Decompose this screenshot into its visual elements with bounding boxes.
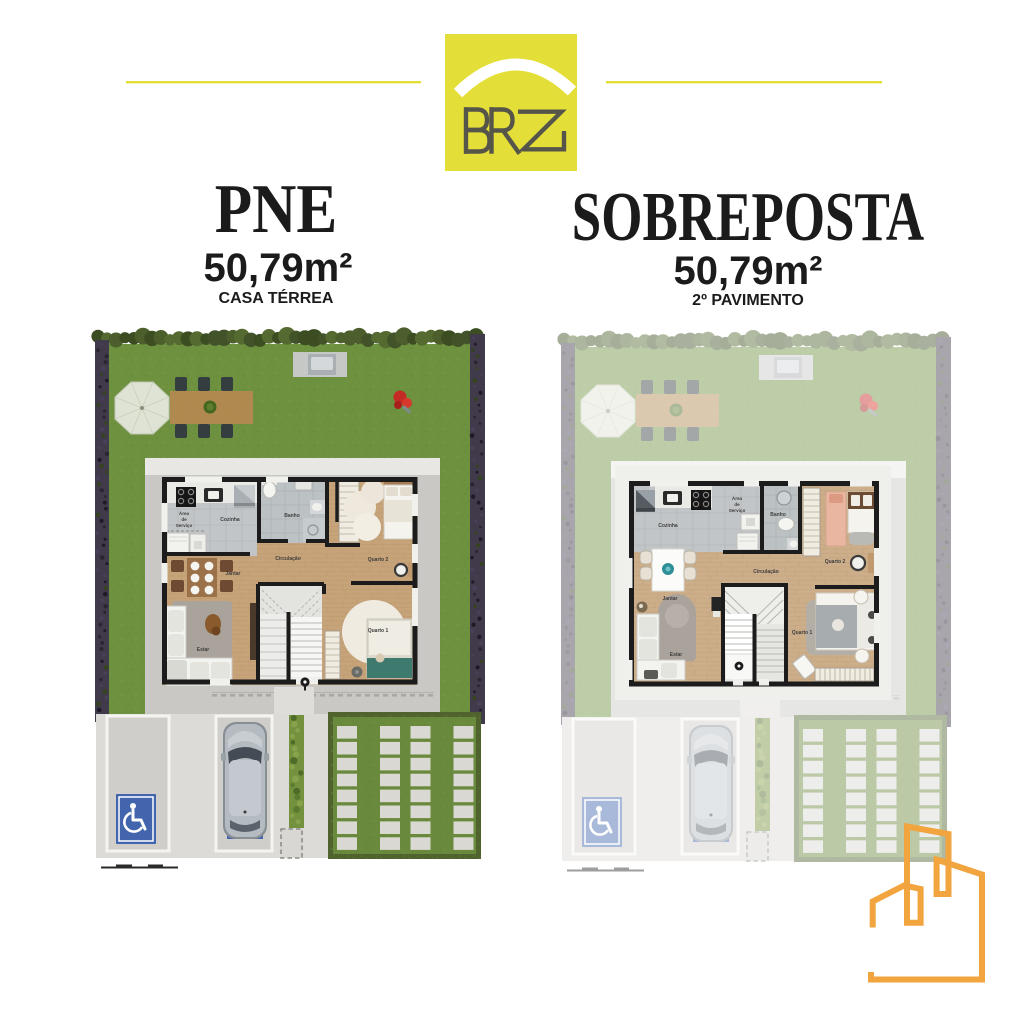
svg-text:Quarto 2: Quarto 2 <box>368 557 389 563</box>
svg-text:Quarto 2: Quarto 2 <box>825 559 846 565</box>
svg-text:Jantar: Jantar <box>225 571 240 577</box>
svg-text:Jantar: Jantar <box>662 596 677 602</box>
svg-text:Quarto 1: Quarto 1 <box>368 628 389 634</box>
svg-text:de: de <box>734 502 740 507</box>
svg-text:Serviço: Serviço <box>729 508 746 513</box>
svg-text:Banho: Banho <box>770 512 786 518</box>
svg-text:Cozinha: Cozinha <box>220 517 240 523</box>
svg-text:Banho: Banho <box>284 513 300 519</box>
svg-text:Circulação: Circulação <box>275 556 301 562</box>
svg-text:Área: Área <box>179 510 190 516</box>
svg-text:Estar: Estar <box>197 647 210 653</box>
svg-text:de: de <box>181 517 187 522</box>
svg-text:Estar: Estar <box>670 652 683 658</box>
svg-text:Circulação: Circulação <box>753 569 779 575</box>
svg-text:Quarto 1: Quarto 1 <box>792 630 813 636</box>
svg-text:Cozinha: Cozinha <box>658 523 678 529</box>
svg-text:Área: Área <box>732 495 743 501</box>
svg-text:Serviço: Serviço <box>176 523 193 528</box>
